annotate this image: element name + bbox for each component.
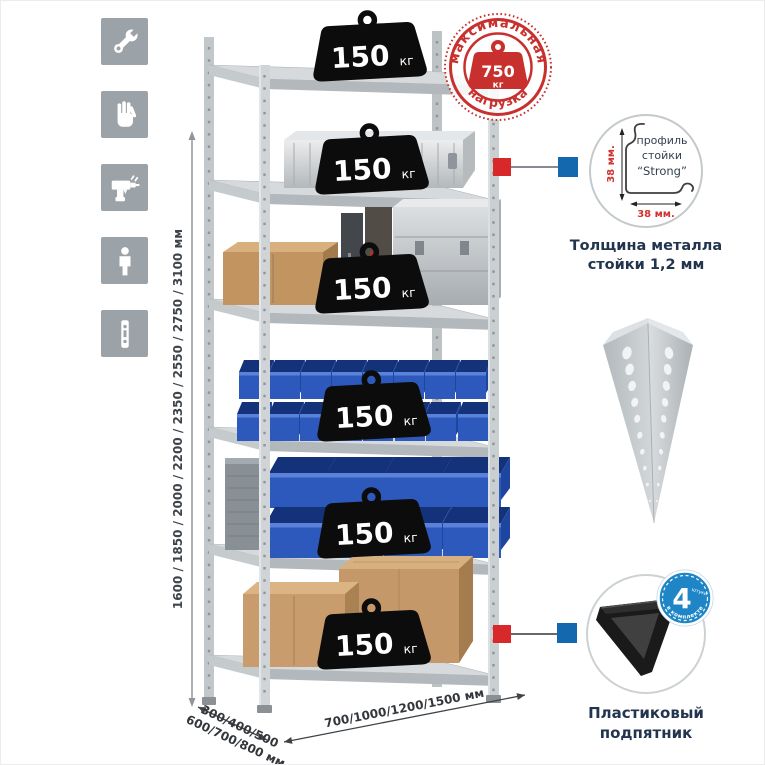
product-infographic: 1600 / 1850 / 2000 / 2200 / 2350 / 2550 … [0, 0, 765, 765]
svg-text:кг: кг [403, 641, 418, 657]
svg-text:750: 750 [481, 62, 514, 81]
shelf-load-badge-1: 150 кг [310, 10, 427, 82]
foot-caption: Пластиковый подпятник [561, 704, 731, 743]
profile-callout-connector [493, 157, 578, 177]
foot-caption-line1: Пластиковый [561, 704, 731, 724]
svg-text:150: 150 [334, 399, 394, 435]
rack: 150 кг 150 кг 150 кг 150 кг 150 кг [202, 10, 510, 713]
profile-caption-line2: стойки 1,2 мм [561, 256, 731, 275]
svg-text:кг: кг [403, 413, 418, 429]
profile-label-1: профиль [637, 134, 688, 147]
svg-text:150: 150 [332, 152, 392, 188]
height-dimension-label: 1600 / 1850 / 2000 / 2200 / 2350 / 2550 … [171, 229, 185, 609]
max-load-stamp: максимальная нагрузка 750 кг [445, 14, 551, 120]
shelving-illustration: 1600 / 1850 / 2000 / 2200 / 2350 / 2550 … [1, 1, 765, 765]
svg-text:кг: кг [403, 530, 418, 546]
included-count-badge: 4 штуки в комплекте [657, 570, 713, 626]
svg-text:150: 150 [330, 39, 390, 75]
foot-caption-line2: подпятник [561, 724, 731, 744]
svg-text:150: 150 [334, 516, 394, 552]
plastic-foot-circle: 4 штуки в комплекте [587, 570, 713, 693]
svg-text:кг: кг [493, 81, 504, 91]
angle-post-image [603, 318, 693, 523]
svg-text:150: 150 [334, 627, 394, 663]
svg-text:кг: кг [401, 285, 416, 301]
badge-number: 4 [672, 582, 691, 615]
profile-dim-horizontal: 38 мм. [637, 209, 675, 220]
profile-detail-circle: 38 мм. 38 мм. профиль стойки “Strong” [590, 115, 702, 227]
profile-caption: Толщина металла стойки 1,2 мм [561, 237, 731, 275]
height-dimension: 1600 / 1850 / 2000 / 2200 / 2350 / 2550 … [171, 131, 196, 707]
profile-caption-line1: Толщина металла [561, 237, 731, 256]
foot-callout-connector [493, 623, 577, 643]
svg-text:кг: кг [401, 166, 416, 182]
svg-text:кг: кг [399, 53, 414, 69]
svg-text:150: 150 [332, 271, 392, 307]
profile-label-2: стойки [642, 149, 682, 162]
profile-label-3: “Strong” [637, 164, 687, 178]
profile-dim-vertical: 38 мм. [606, 145, 617, 183]
